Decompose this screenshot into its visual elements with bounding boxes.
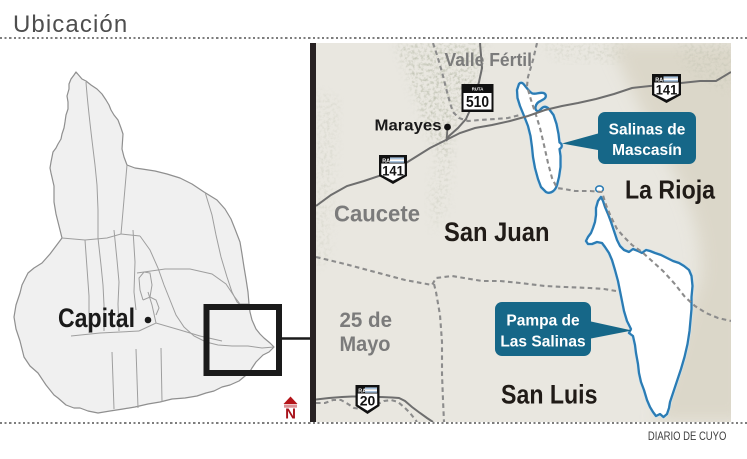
svg-text:Caucete: Caucete <box>334 201 420 227</box>
svg-text:25 de: 25 de <box>340 308 393 332</box>
svg-text:RUTA: RUTA <box>472 87 484 92</box>
svg-text:San Luis: San Luis <box>501 380 598 410</box>
svg-text:La Rioja: La Rioja <box>625 175 715 205</box>
svg-text:510: 510 <box>466 94 489 111</box>
svg-text:Salinas de: Salinas de <box>609 122 686 139</box>
svg-text:Marayes: Marayes <box>375 118 442 135</box>
svg-text:Capital: Capital <box>58 303 135 333</box>
svg-text:Pampa de: Pampa de <box>506 313 580 330</box>
svg-text:141: 141 <box>656 81 678 97</box>
svg-text:141: 141 <box>382 162 404 178</box>
svg-text:Valle Fértil: Valle Fértil <box>445 50 533 70</box>
svg-text:N: N <box>285 406 296 423</box>
svg-text:20: 20 <box>360 392 376 408</box>
svg-text:San Juan: San Juan <box>444 217 550 247</box>
svg-text:Mascasín: Mascasín <box>612 142 682 159</box>
svg-text:Las Salinas: Las Salinas <box>500 334 585 351</box>
svg-text:Mayo: Mayo <box>340 332 391 356</box>
